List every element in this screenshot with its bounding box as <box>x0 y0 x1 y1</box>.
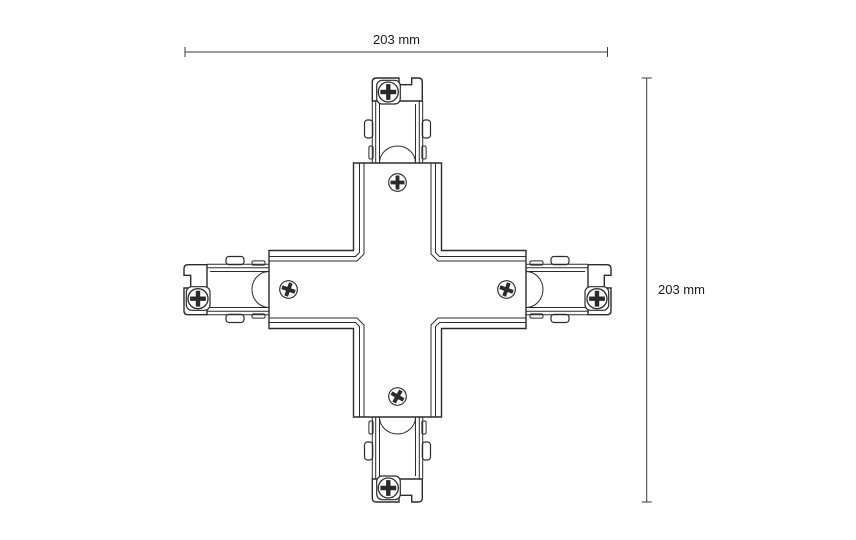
phillips-screw-icon <box>389 174 407 192</box>
height-dimension-label: 203 mm <box>658 282 705 297</box>
track-end-top <box>365 78 431 163</box>
technical-drawing-page: 203 mm 203 mm <box>0 0 856 540</box>
x-connector-drawing: 203 mm 203 mm <box>0 0 856 540</box>
width-dimension-label: 203 mm <box>373 32 420 47</box>
width-dimension: 203 mm <box>185 32 608 57</box>
track-end-right <box>526 257 611 323</box>
track-end-left <box>184 257 269 323</box>
track-end-bottom <box>365 417 431 502</box>
height-dimension: 203 mm <box>642 78 705 502</box>
connector-cross-body <box>269 163 526 417</box>
